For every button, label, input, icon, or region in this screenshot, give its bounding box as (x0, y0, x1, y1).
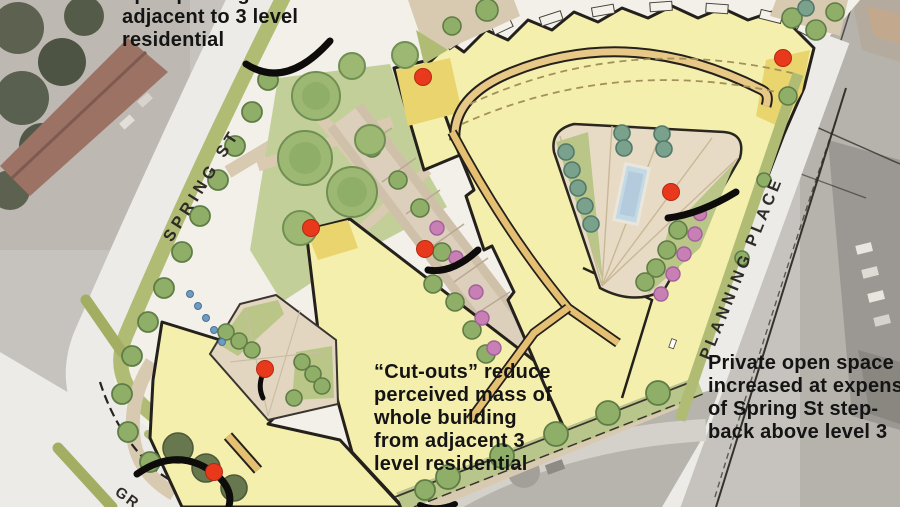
red-dot-marker (417, 241, 434, 258)
annotation-top-left: open parking adjacent to 3 level residen… (122, 0, 298, 52)
red-dot-marker (257, 361, 274, 378)
red-dot-marker (303, 220, 320, 237)
annotation-line: increased at expense (708, 375, 900, 398)
annotation-line: of Spring St step- (708, 398, 900, 421)
annotation-line: “Cut-outs” reduce (374, 361, 552, 384)
annotation-line: adjacent to 3 level (122, 6, 298, 29)
red-dot-marker (663, 184, 680, 201)
annotation-right: Private open space increased at expense … (708, 352, 900, 444)
annotation-line: perceived mass of (374, 384, 552, 407)
red-dot-marker (415, 69, 432, 86)
annotation-line: back above level 3 (708, 421, 900, 444)
red-dot-marker (775, 50, 792, 67)
annotation-center: “Cut-outs” reduce perceived mass of whol… (374, 361, 552, 476)
arrow-annotation (260, 376, 263, 398)
annotation-line: whole building (374, 407, 552, 430)
annotation-line: residential (122, 29, 298, 52)
annotation-line: level residential (374, 453, 552, 476)
annotation-line: from adjacent 3 (374, 430, 552, 453)
annotation-line: Private open space (708, 352, 900, 375)
red-dot-marker (206, 464, 223, 481)
